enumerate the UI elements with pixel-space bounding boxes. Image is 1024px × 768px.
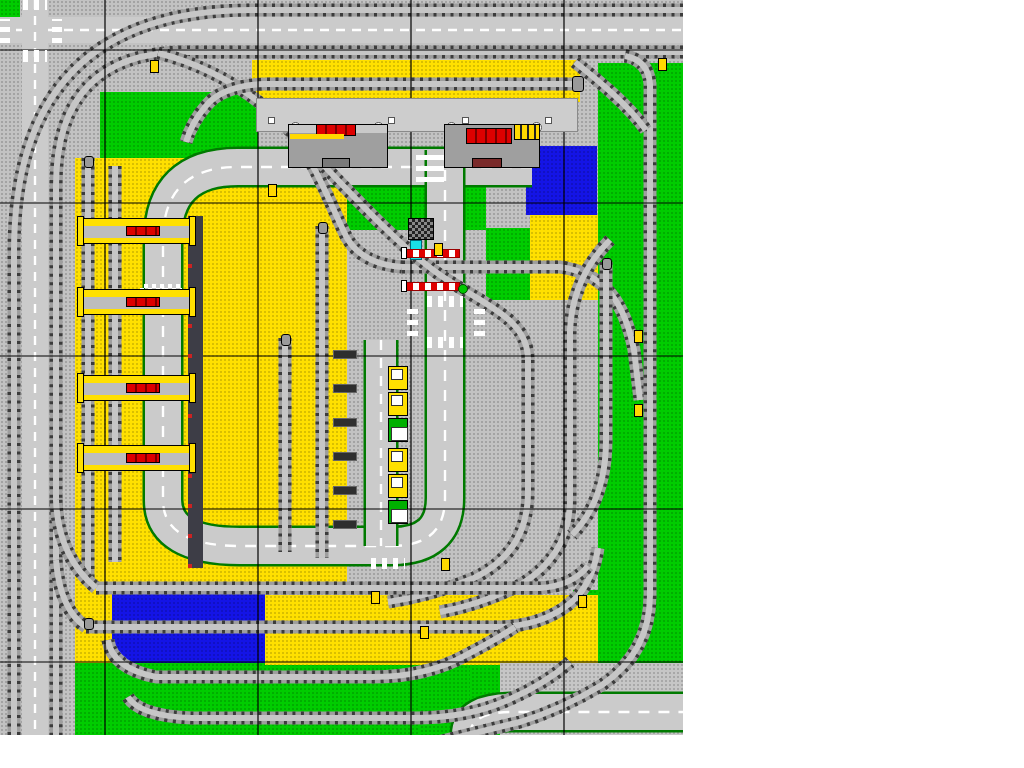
buffer-stop	[84, 618, 94, 630]
track-signal	[441, 558, 450, 571]
gantry-crane-post	[189, 216, 196, 246]
crosswalk-station-road	[416, 150, 444, 182]
platform-post	[388, 117, 395, 124]
car-windshield	[391, 395, 403, 406]
gantry-crane-post	[77, 443, 84, 473]
buffer-stop	[318, 222, 328, 234]
crossing-gate-south	[406, 282, 460, 291]
platform-post	[545, 117, 552, 124]
parked-truck	[388, 500, 408, 524]
buffer-stop	[602, 258, 612, 270]
track-signal	[434, 243, 443, 256]
track-bottom-curve-1-ballast	[108, 627, 515, 677]
crossing-gate-north	[406, 249, 460, 258]
track-signal	[634, 404, 643, 417]
layout-canvas	[0, 0, 683, 735]
track-signal	[371, 591, 380, 604]
loading-pier	[333, 520, 357, 529]
track-signal	[578, 595, 587, 608]
station-building-east-yellow-unit	[514, 124, 540, 140]
loading-pier	[333, 384, 357, 393]
track-bottom-curve-1-ties	[108, 627, 515, 677]
parked-car	[388, 392, 408, 416]
gantry-crane-load	[126, 453, 160, 463]
traffic-light-green	[458, 284, 468, 294]
truck-cargo-box	[391, 509, 408, 523]
loading-pier	[333, 486, 357, 495]
gantry-crane-load	[126, 383, 160, 393]
gantry-crane-post	[189, 443, 196, 473]
crosswalk-center-north	[427, 296, 463, 307]
gantry-crane-load	[126, 297, 160, 307]
gantry-crane-post	[77, 287, 84, 317]
car-windshield	[391, 477, 403, 488]
gantry-crane-post	[189, 287, 196, 317]
platform-post	[462, 117, 469, 124]
track-signal	[150, 60, 159, 73]
station-building-west-door	[322, 158, 350, 168]
track-bottom-curve-1-bed	[108, 627, 515, 677]
buffer-stop	[281, 334, 291, 346]
crosswalk-junction-nw-top	[23, 0, 47, 10]
track-signal	[420, 626, 429, 639]
parked-car	[388, 366, 408, 390]
loading-pier	[333, 452, 357, 461]
crosswalk-center-east	[474, 308, 485, 336]
buffer-stop	[572, 76, 584, 92]
buffer-stop	[84, 156, 94, 168]
track-signal	[658, 58, 667, 71]
gantry-crane-post	[189, 373, 196, 403]
crosswalk-junction-nw-bottom	[23, 50, 47, 62]
loading-pier	[333, 418, 357, 427]
gantry-crane-post	[77, 216, 84, 246]
crosswalk-junction-nw-right	[52, 19, 62, 43]
parked-car	[388, 474, 408, 498]
crossing-gate-post	[401, 247, 407, 259]
platform-post	[268, 117, 275, 124]
loading-pier	[333, 350, 357, 359]
parked-truck	[388, 418, 408, 442]
gantry-crane-load	[126, 226, 160, 236]
station-building-east-red-roof	[466, 128, 512, 144]
track-signal	[634, 330, 643, 343]
car-windshield	[391, 451, 403, 462]
crosswalk-center-west	[407, 308, 418, 336]
parked-car	[388, 448, 408, 472]
track-signal	[268, 184, 277, 197]
truck-cargo-box	[391, 427, 408, 441]
crosswalk-center-south	[427, 337, 463, 348]
crossing-keeper-hut	[408, 218, 434, 240]
crosswalk-junction-nw-left	[0, 19, 10, 43]
station-building-west-trim	[290, 134, 344, 139]
car-windshield	[391, 369, 403, 380]
crosswalk-boulevard-south	[371, 558, 405, 569]
gantry-crane-post	[77, 373, 84, 403]
station-building-east-door	[472, 158, 502, 168]
crossing-gate-post	[401, 280, 407, 292]
